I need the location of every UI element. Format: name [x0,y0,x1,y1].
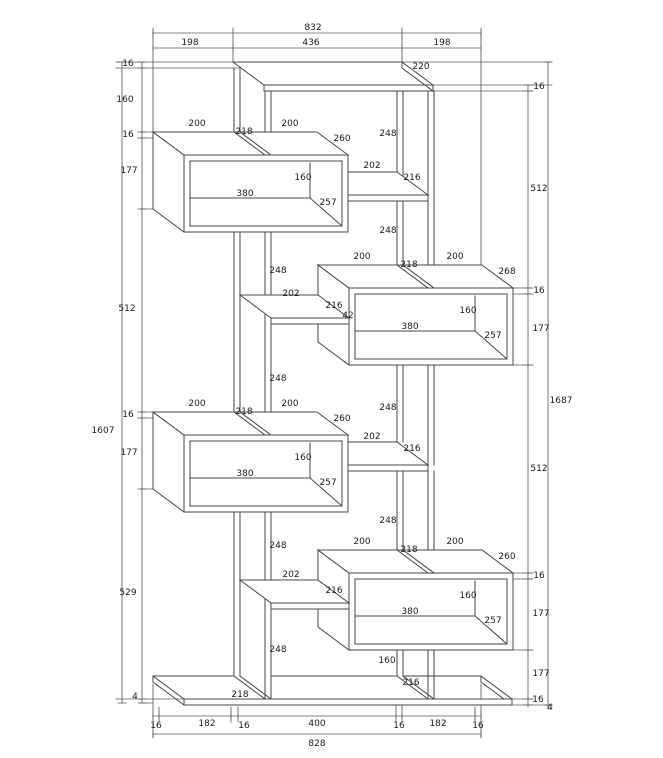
furniture-dimension-drawing: 8321984361982201616016177512161775294160… [0,0,663,758]
box1-depth-260: 260 [333,134,350,144]
dim-left-total-1607: 1607 [92,426,115,436]
dim-top-center-436: 436 [302,38,319,48]
dim-right-512-2: 512 [530,464,547,474]
bottom-box-216: 216 [402,678,419,688]
gap-248-7: 248 [269,541,286,551]
dim-left-16-2: 16 [122,130,134,140]
box4-inner-height-160: 160 [459,591,476,601]
dim-right-total-1687: 1687 [550,396,573,406]
box2-top-left-200: 200 [353,252,370,262]
box2-inner-width-380: 380 [401,322,418,332]
dim-right-177-1: 177 [532,324,549,334]
shelf-l1-202: 202 [282,289,299,299]
dim-left-177-1: 177 [120,166,137,176]
box3-top-right-200: 200 [281,399,298,409]
box4-spine-218: 218 [400,545,417,555]
dim-bottom-182-1: 182 [198,719,215,729]
dim-left-160: 160 [116,95,133,105]
box4-shelf-216: 216 [325,586,342,596]
box-1 [153,132,348,232]
gap-248-1: 248 [379,129,396,139]
dim-left-16-3: 16 [122,410,134,420]
box1-inner-height-160: 160 [294,173,311,183]
shelf-r1-216: 216 [403,173,420,183]
dim-bottom-16-4: 16 [472,721,484,731]
dim-top-right-198: 198 [433,38,450,48]
shelf-r2-202: 202 [363,432,380,442]
box3-inner-height-160: 160 [294,453,311,463]
dim-right-177-3: 177 [532,669,549,679]
box-4 [318,550,513,650]
dim-right-16-4: 16 [532,695,544,705]
box1-top-left-200: 200 [188,119,205,129]
gap-248-4: 248 [269,374,286,384]
box1-inner-width-380: 380 [236,189,253,199]
gap-248-2: 248 [379,226,396,236]
box2-depth-268: 268 [498,267,515,277]
gap-248-3: 248 [269,266,286,276]
bottom-box-218: 218 [231,690,248,700]
dim-right-16-3: 16 [533,571,545,581]
box4-top-right-200: 200 [446,537,463,547]
box3-inner-width-380: 380 [236,469,253,479]
bottom-box-160: 160 [378,656,395,666]
dim-right-16-1: 16 [533,82,545,92]
dim-right-16-2: 16 [533,286,545,296]
gap-248-8: 248 [269,645,286,655]
dim-bottom-400: 400 [308,719,325,729]
dim-top-left-198: 198 [181,38,198,48]
box3-top-left-200: 200 [188,399,205,409]
box3-floor-diag-257: 257 [319,478,336,488]
box1-top-right-200: 200 [281,119,298,129]
dim-top-depth-220: 220 [412,62,429,72]
dim-left-512: 512 [118,304,135,314]
dim-right-4: 4 [547,703,553,713]
bottom-panel [153,676,512,705]
dim-bottom-16-1: 16 [150,721,162,731]
drawing-canvas: 8321984361982201616016177512161775294160… [0,0,663,758]
dim-bottom-total-828: 828 [308,739,325,749]
box1-floor-diag-257: 257 [319,198,336,208]
dim-right-512-1: 512 [530,184,547,194]
top-panel [233,62,433,91]
dim-right-177-2: 177 [532,609,549,619]
box1-spine-218: 218 [235,127,252,137]
dim-top-overall: 832 [304,23,321,33]
dim-left-177-2: 177 [120,448,137,458]
shelf-l2-202: 202 [282,570,299,580]
box3-depth-260: 260 [333,414,350,424]
box4-depth-260: 260 [498,552,515,562]
box-3 [153,412,348,512]
box2-shelf-216: 216 [325,301,342,311]
box2-shelf-42: 42 [342,311,353,321]
dim-bottom-182-2: 182 [429,719,446,729]
box4-floor-diag-257: 257 [484,616,501,626]
box2-top-right-200: 200 [446,252,463,262]
dim-bottom-16-3: 16 [393,721,405,731]
dim-bottom-16-2: 16 [238,721,250,731]
box4-inner-width-380: 380 [401,607,418,617]
gap-248-6: 248 [379,516,396,526]
dim-left-529: 529 [119,588,136,598]
box4-top-left-200: 200 [353,537,370,547]
box2-floor-diag-257: 257 [484,331,501,341]
box3-spine-218: 218 [235,407,252,417]
box2-inner-height-160: 160 [459,306,476,316]
dim-left-16-1: 16 [122,59,134,69]
shelf-r1-202: 202 [363,161,380,171]
shelf-r2-216: 216 [403,444,420,454]
dim-left-4: 4 [132,692,138,702]
gap-248-5: 248 [379,403,396,413]
box2-spine-218: 218 [400,260,417,270]
